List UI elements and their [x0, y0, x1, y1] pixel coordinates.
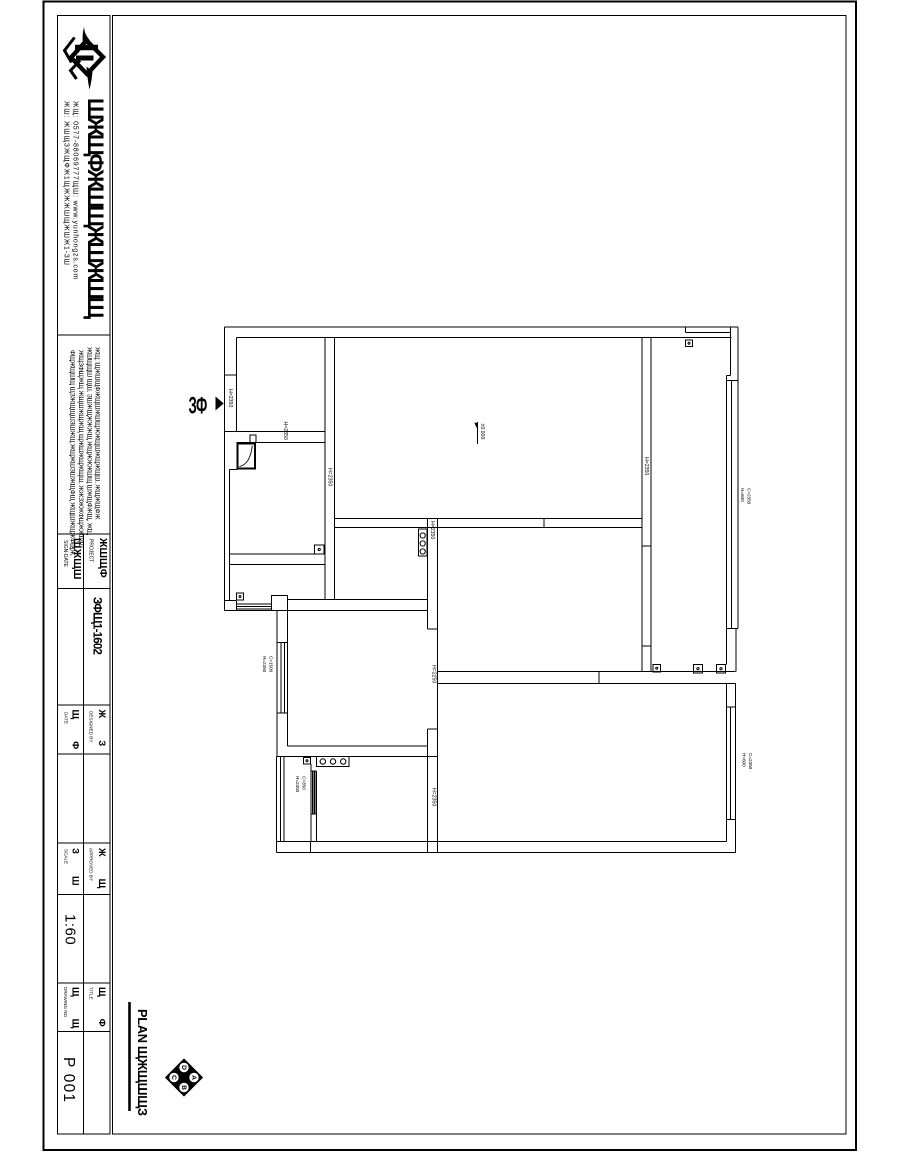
svg-text:DATE: DATE: [64, 712, 69, 724]
svg-text:H=2350: H=2350: [262, 656, 267, 673]
svg-text:PROJECT: PROJECT: [88, 539, 94, 562]
svg-text:ЖЩ: ЖЩ: [96, 847, 107, 910]
svg-text:H=2350: H=2350: [282, 422, 288, 440]
svg-text:ЖШЩЩШ ЩШ, ЗШЖЩЖЖЖЩ ЖЩЖЖЖШЩ ШЖЩ: ЖШЩЩШ ЩШ, ЗШЖЩЖЖЖЩ ЖЩЖЖЖШЩ ШЖЩФЖЩ, ЖЩ: [86, 347, 93, 536]
svg-text:ЖЩ: 0577-88069777ЩШ: www.yunho: ЖЩ: 0577-88069777ЩШ: www.yunhongzs.com: [72, 101, 79, 280]
svg-text:PLAN ЩЖЩШЩЗ: PLAN ЩЖЩШЩЗ: [135, 1009, 150, 1116]
svg-text:ЩЩ: ЩЩ: [70, 987, 81, 1050]
svg-text:P 001: P 001: [60, 1057, 77, 1103]
svg-text:SIGN-DATE: SIGN-DATE: [62, 540, 68, 568]
svg-text:H=2350: H=2350: [227, 389, 233, 407]
svg-text:ЖЗ: ЖЗ: [96, 709, 107, 769]
svg-text:ЗФЩ1-1602: ЗФЩ1-1602: [91, 597, 103, 654]
svg-text:ЖШ: ЖШЩЗЖЩФЖ1ЩЖЖЖШЩЖШЖ1-3Ш: ЖШ: ЖШЩЗЖЩФЖ1ЩЖЖЖШЩЖШЖ1-3Ш: [63, 101, 70, 266]
svg-text:H=2350: H=2350: [327, 468, 333, 486]
svg-text:ЗФ: ЗФ: [189, 392, 207, 419]
svg-text:C=2350: C=2350: [748, 753, 753, 770]
svg-text:ЩФ: ЩФ: [96, 987, 107, 1049]
svg-text:B: B: [180, 1085, 187, 1090]
svg-text:A: A: [190, 1075, 197, 1080]
svg-text:H=2350: H=2350: [431, 788, 437, 806]
svg-text:ЗШ: ЗШ: [70, 848, 81, 908]
svg-text:H=2350: H=2350: [643, 457, 649, 475]
svg-text:D: D: [180, 1065, 187, 1070]
svg-text:DESIGNED BY: DESIGNED BY: [89, 711, 94, 742]
svg-text:C: C: [170, 1075, 177, 1080]
svg-text:ШЖЩФЖШЩЖШЖШЩ: ШЖЩФЖШЩЖШЖШЩ: [83, 98, 108, 320]
svg-text:H=2250: H=2250: [431, 665, 437, 683]
svg-text:TITLE: TITLE: [89, 987, 94, 1000]
svg-text:APPROVED BY: APPROVED BY: [89, 848, 94, 881]
svg-text:SCALE: SCALE: [64, 849, 69, 864]
svg-text:ЩЖЩШ: ЩЖЩШ: [71, 538, 83, 579]
svg-text:C=350: C=350: [302, 776, 307, 790]
svg-text:H=2350: H=2350: [295, 776, 300, 793]
svg-text:DRAWING NO: DRAWING NO: [63, 987, 68, 1018]
svg-text:ЖШЩФ: ЖШЩФ: [97, 537, 109, 578]
svg-text:H=600: H=600: [740, 488, 745, 502]
svg-text:C=1500: C=1500: [269, 656, 274, 673]
svg-text:ЖЩЗФЩЖЩ ЖЩШЖЩЖЩ ЩЖШЖЩЖЩШ, ЖЖЗЖ: ЖЩЗФЩЖЩ ЖЩШЖЩЖЩ ЩЖШЖЩЖЩШ, ЖЖЗЖЖФЩЖЖЩШ: [77, 350, 84, 548]
svg-text:ЩФ: ЩФ: [70, 710, 81, 772]
svg-text:ФЩЖЩШЩ ЩЗЖЩЩШЗШЖЩ ЖЩЖШЗШЖЩФЩ Ж: ФЩЖЩШЩ ЩЗЖЩЩШЗШЖЩ ЖЩЖШЗШЖЩФЩ ЖЩШЖЩЖФЩЖ.: [69, 350, 76, 557]
svg-text:H=600: H=600: [742, 753, 747, 767]
svg-text:H=2350: H=2350: [429, 521, 435, 539]
svg-text:±0.000: ±0.000: [479, 424, 485, 440]
svg-text:C=2350: C=2350: [747, 488, 752, 505]
svg-text:ЖЩ: ЩЖШЩФЖЩШЖШЩЖЖЩШЖЩЖЩШ, ЖЩЖЩ: ЖЩ: ЩЖШЩФЖЩШЖШЩЖЖЩШЖЩЖЩШ, ЖЩЖЩФЖ: [94, 347, 101, 520]
svg-text:1:60: 1:60: [62, 914, 79, 945]
